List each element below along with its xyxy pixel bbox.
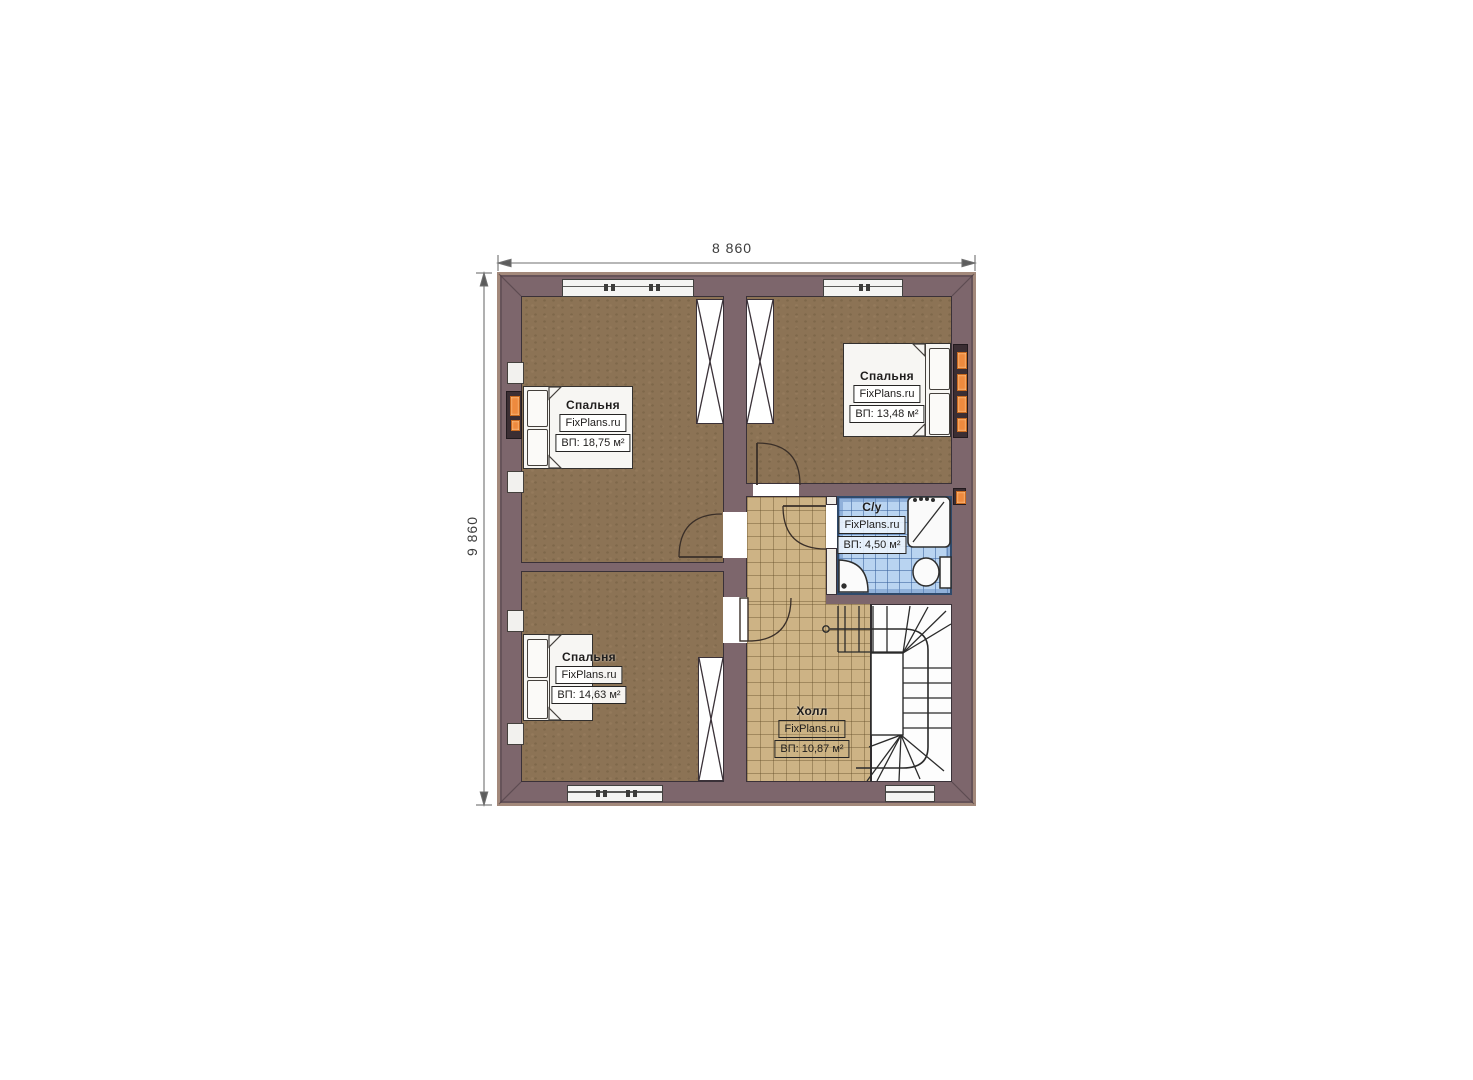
- bed-divider: [925, 344, 926, 436]
- radiator-cell: [957, 396, 967, 413]
- room-name: Спальня: [562, 650, 616, 664]
- room-label-bedroom-top-right: Спальня FixPlans.ru ВП: 13,48 м²: [849, 369, 924, 423]
- window-tick: [626, 790, 630, 797]
- door-opening-bedroom-bottom-left: [723, 597, 747, 643]
- door-opening-bathroom: [826, 505, 837, 548]
- dimension-width-line: [498, 255, 975, 271]
- floor-plan-canvas: 8 860 9 860: [0, 0, 1473, 1080]
- vent-shaft-top-left: [696, 299, 724, 424]
- dimension-width-label: 8 860: [712, 240, 752, 256]
- window-tick: [596, 790, 600, 797]
- watermark-fixplans: FixPlans.ru: [853, 385, 920, 403]
- bed-divider: [549, 387, 550, 468]
- room-area: ВП: 13,48 м²: [849, 405, 924, 423]
- window-tick: [649, 284, 653, 291]
- pillow: [527, 429, 548, 466]
- room-name: С/у: [862, 500, 882, 514]
- door-opening-bedroom-top-right: [753, 484, 799, 496]
- window-glass-line: [886, 791, 934, 793]
- radiator-cell: [511, 420, 520, 431]
- pillow: [527, 680, 548, 719]
- window-top-left: [562, 279, 694, 297]
- radiator-cell: [957, 374, 967, 391]
- nightstand: [507, 471, 524, 493]
- nightstand: [507, 610, 524, 632]
- radiator-right-wall: [953, 344, 968, 438]
- floor-stairs: [871, 604, 952, 782]
- room-name: Спальня: [566, 398, 620, 412]
- bed-divider: [549, 635, 550, 720]
- radiator-cell: [956, 491, 966, 504]
- pillow: [929, 348, 950, 390]
- window-bottom-right: [885, 785, 935, 802]
- room-area: ВП: 14,63 м²: [551, 686, 626, 704]
- pillow: [527, 390, 548, 427]
- room-label-bedroom-top-left: Спальня FixPlans.ru ВП: 18,75 м²: [555, 398, 630, 452]
- nightstand: [507, 362, 524, 384]
- room-name: Спальня: [860, 369, 914, 383]
- window-glass-line: [563, 286, 693, 288]
- window-tick: [611, 284, 615, 291]
- room-label-bathroom: С/у FixPlans.ru ВП: 4,50 м²: [837, 500, 906, 554]
- dimension-height-label: 9 860: [464, 506, 480, 566]
- window-tick: [866, 284, 870, 291]
- vent-shaft-top-right: [746, 299, 774, 424]
- room-area: ВП: 10,87 м²: [774, 740, 849, 758]
- window-glass-line: [824, 286, 902, 288]
- window-top-right: [823, 279, 903, 297]
- pillow: [527, 639, 548, 678]
- watermark-fixplans: FixPlans.ru: [838, 516, 905, 534]
- window-glass-line: [568, 791, 662, 793]
- watermark-fixplans: FixPlans.ru: [555, 666, 622, 684]
- watermark-fixplans: FixPlans.ru: [778, 720, 845, 738]
- radiator-cell: [957, 352, 967, 369]
- floor-hall-upper: [746, 496, 826, 605]
- window-tick: [603, 790, 607, 797]
- room-area: ВП: 18,75 м²: [555, 434, 630, 452]
- window-tick: [656, 284, 660, 291]
- radiator-left-wall: [506, 391, 522, 439]
- vent-shaft-bottom: [698, 657, 724, 781]
- window-bottom-left: [567, 785, 663, 802]
- radiator-bathroom-wall: [953, 488, 966, 505]
- bathroom-partition-lower: [826, 548, 837, 595]
- door-opening-bedroom-top-left: [723, 512, 747, 558]
- room-label-bedroom-bottom-left: Спальня FixPlans.ru ВП: 14,63 м²: [551, 650, 626, 704]
- room-name: Холл: [796, 704, 827, 718]
- watermark-fixplans: FixPlans.ru: [559, 414, 626, 432]
- window-tick: [859, 284, 863, 291]
- room-area: ВП: 4,50 м²: [837, 536, 906, 554]
- window-tick: [604, 284, 608, 291]
- pillow: [929, 393, 950, 435]
- room-label-hall: Холл FixPlans.ru ВП: 10,87 м²: [774, 704, 849, 758]
- nightstand: [507, 723, 524, 745]
- bathroom-partition-upper: [826, 496, 837, 505]
- window-tick: [633, 790, 637, 797]
- radiator-cell: [510, 396, 520, 416]
- radiator-cell: [957, 418, 967, 432]
